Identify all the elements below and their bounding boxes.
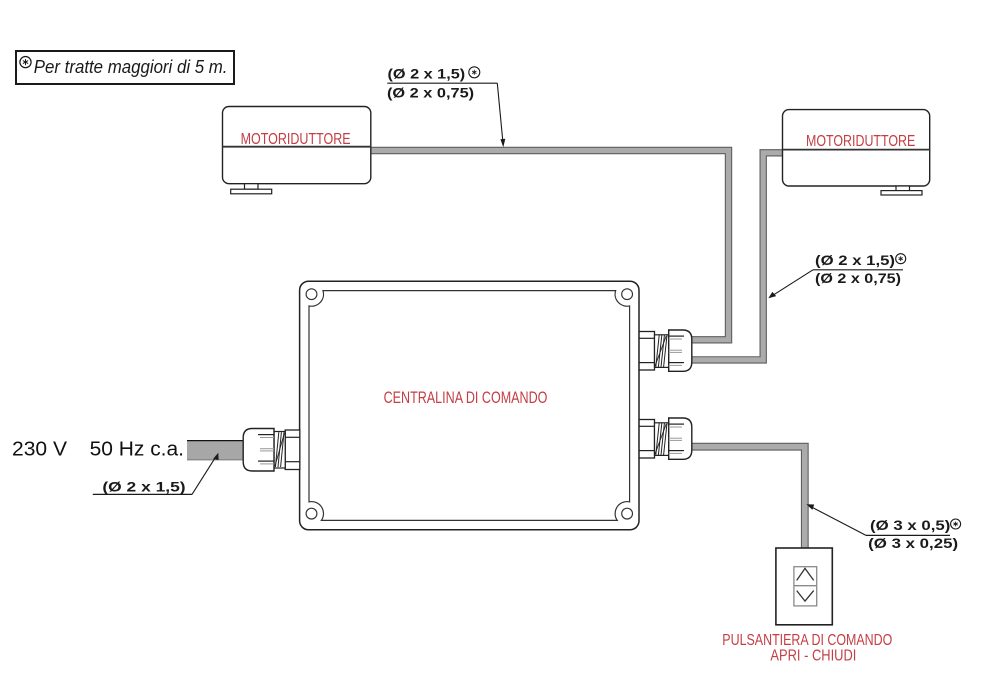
svg-text:230 V: 230 V — [12, 438, 67, 461]
svg-text:MOTORIDUTTORE: MOTORIDUTTORE — [806, 133, 915, 150]
svg-text:PULSANTIERA DI COMANDO: PULSANTIERA DI COMANDO — [722, 632, 892, 649]
svg-text:(Ø 3 x 0,5): (Ø 3 x 0,5) — [870, 517, 950, 533]
svg-text:(Ø 2 x 1,5): (Ø 2 x 1,5) — [815, 252, 895, 268]
svg-text:50 Hz c.a.: 50 Hz c.a. — [90, 438, 184, 461]
svg-text:(Ø 3 x 0,25): (Ø 3 x 0,25) — [868, 535, 958, 551]
svg-text:APRI - CHIUDI: APRI - CHIUDI — [770, 648, 856, 665]
svg-text:Per tratte maggiori di 5 m.: Per tratte maggiori di 5 m. — [34, 57, 228, 77]
svg-text:MOTORIDUTTORE: MOTORIDUTTORE — [241, 131, 351, 148]
svg-text:(Ø 2 x 0,75): (Ø 2 x 0,75) — [387, 85, 474, 101]
svg-text:(Ø 2 x 1,5): (Ø 2 x 1,5) — [102, 478, 185, 494]
svg-text:(Ø 2 x 0,75): (Ø 2 x 0,75) — [815, 270, 901, 286]
svg-text:(Ø 2 x 1,5): (Ø 2 x 1,5) — [388, 65, 466, 81]
svg-text:CENTRALINA DI COMANDO: CENTRALINA DI COMANDO — [384, 389, 548, 407]
